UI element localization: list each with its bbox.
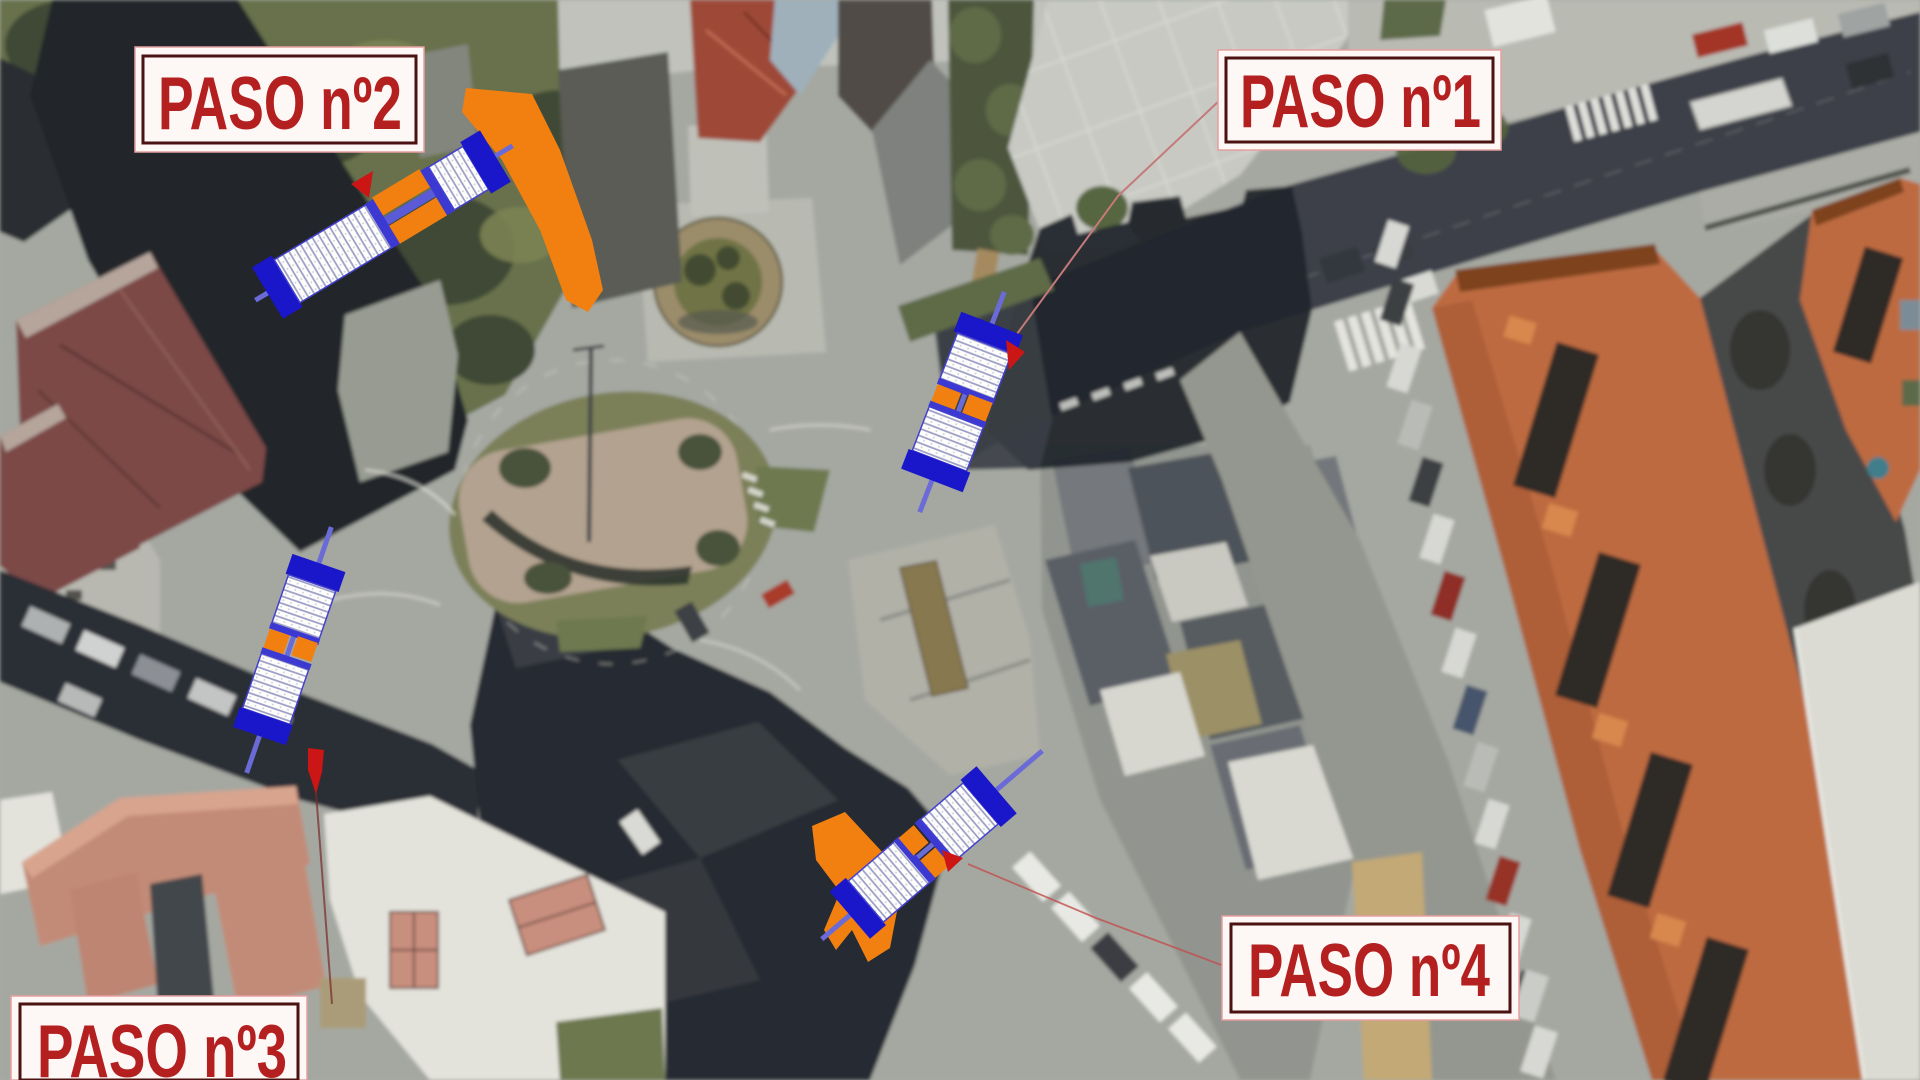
svg-text:PASO nº1: PASO nº1	[1240, 59, 1481, 143]
svg-text:PASO nº4: PASO nº4	[1248, 928, 1490, 1012]
svg-text:PASO nº2: PASO nº2	[158, 61, 402, 145]
svg-text:PASO nº3: PASO nº3	[37, 1009, 287, 1080]
